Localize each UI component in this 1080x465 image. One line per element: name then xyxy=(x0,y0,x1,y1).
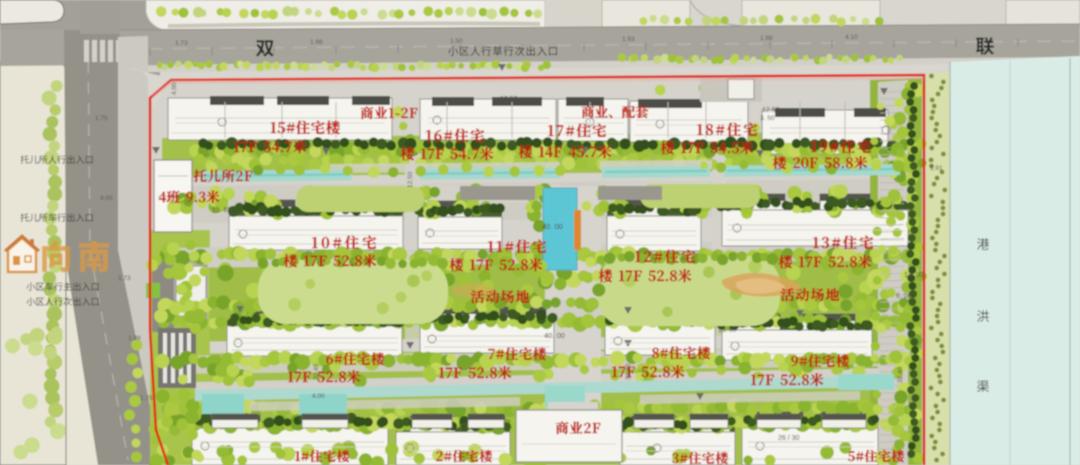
svg-text:32.40: 32.40 xyxy=(625,363,632,380)
svg-text:4.00: 4.00 xyxy=(171,82,178,95)
svg-text:13.50: 13.50 xyxy=(500,96,518,103)
svg-text:1.50: 1.50 xyxy=(450,38,463,45)
svg-text:1.75: 1.75 xyxy=(95,115,108,122)
svg-text:1.75: 1.75 xyxy=(140,395,153,402)
svg-text:1.98: 1.98 xyxy=(760,35,773,42)
svg-text:1.91: 1.91 xyxy=(930,165,943,172)
svg-text:13. 00: 13. 00 xyxy=(718,327,736,334)
svg-text:1.93: 1.93 xyxy=(622,36,635,43)
svg-text:6. 06: 6. 06 xyxy=(896,293,912,300)
svg-text:32.40: 32.40 xyxy=(897,366,904,383)
svg-text:1.98: 1.98 xyxy=(128,335,141,342)
svg-text:4.00: 4.00 xyxy=(100,195,113,202)
svg-text:4.00: 4.00 xyxy=(312,393,325,400)
svg-text:12.50: 12.50 xyxy=(762,107,780,114)
svg-text:12.50: 12.50 xyxy=(407,171,414,188)
svg-text:26 / 30: 26 / 30 xyxy=(778,435,800,442)
svg-text:1.98: 1.98 xyxy=(310,39,323,46)
svg-text:32.40: 32.40 xyxy=(313,363,320,380)
svg-text:15. 65: 15. 65 xyxy=(212,207,232,214)
svg-text:3. 50: 3. 50 xyxy=(760,115,775,122)
svg-text:1.73: 1.73 xyxy=(175,40,188,47)
svg-text:40. 00: 40. 00 xyxy=(542,222,563,231)
svg-text:13. 00: 13. 00 xyxy=(904,272,924,279)
svg-text:40. 00: 40. 00 xyxy=(544,331,565,340)
svg-text:1.73: 1.73 xyxy=(118,275,131,282)
svg-text:4.10: 4.10 xyxy=(845,34,858,41)
